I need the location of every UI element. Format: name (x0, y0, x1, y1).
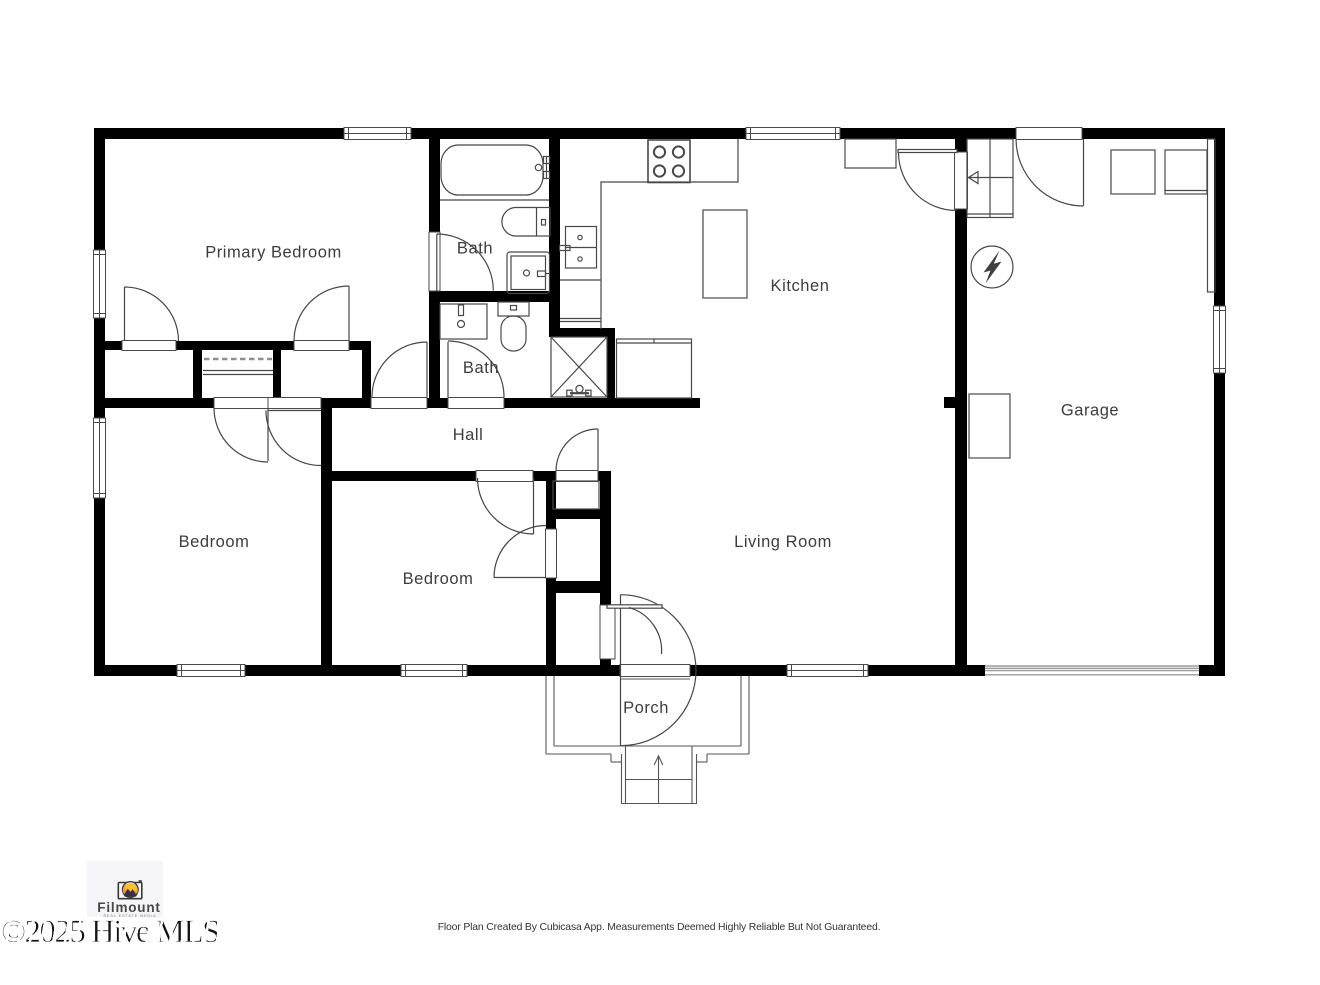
svg-text:Hall: Hall (453, 426, 484, 444)
svg-text:Bath: Bath (457, 240, 493, 258)
svg-text:Bedroom: Bedroom (179, 533, 250, 551)
svg-text:Bedroom: Bedroom (403, 570, 474, 588)
svg-text:Kitchen: Kitchen (771, 277, 830, 295)
svg-text:Primary Bedroom: Primary Bedroom (205, 244, 342, 262)
svg-text:Bath: Bath (463, 359, 499, 377)
svg-text:Living Room: Living Room (734, 533, 832, 551)
svg-text:Garage: Garage (1061, 402, 1119, 420)
svg-text:Porch: Porch (623, 699, 669, 717)
